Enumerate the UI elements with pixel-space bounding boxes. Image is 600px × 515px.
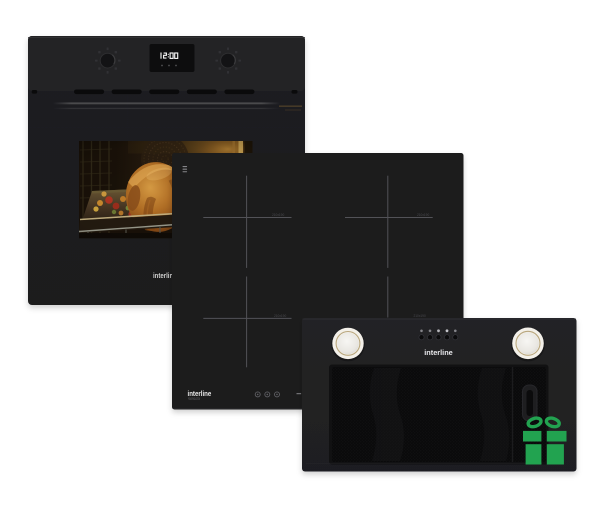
svg-text:210x190: 210x190 <box>417 213 429 217</box>
svg-text:interline: interline <box>424 348 453 357</box>
svg-text:POWER INDUCTION: POWER INDUCTION <box>188 397 200 401</box>
svg-text:210x190: 210x190 <box>272 213 284 217</box>
svg-text:210x190: 210x190 <box>414 314 426 318</box>
svg-text:210x190: 210x190 <box>274 314 286 318</box>
